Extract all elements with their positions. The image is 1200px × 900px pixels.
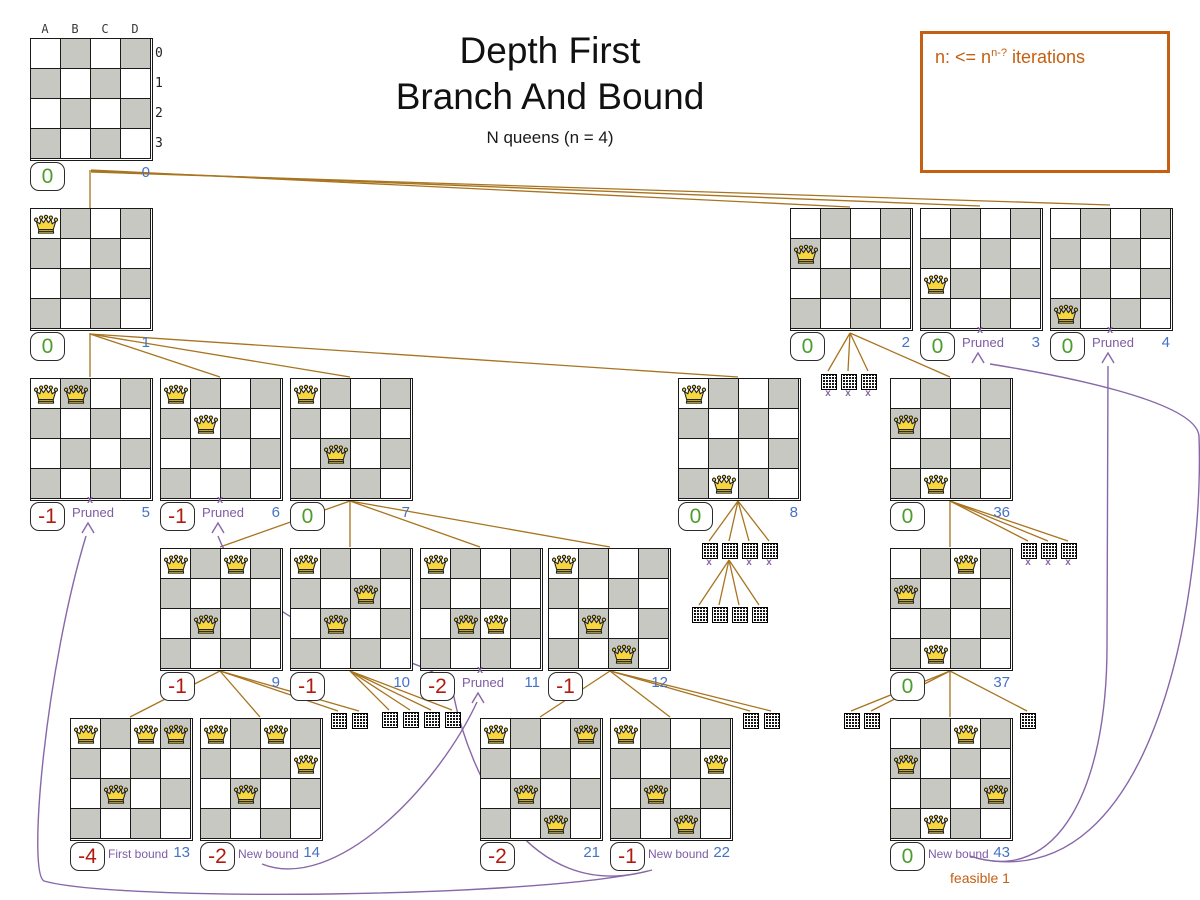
cell bbox=[891, 469, 921, 499]
cell bbox=[421, 639, 451, 669]
cell bbox=[609, 579, 639, 609]
board-10 bbox=[290, 548, 413, 671]
queen-icon bbox=[162, 720, 190, 748]
cell bbox=[161, 809, 191, 839]
cell bbox=[671, 719, 701, 749]
score-badge-8: 0 bbox=[678, 502, 713, 531]
cell bbox=[981, 639, 1011, 669]
cell bbox=[921, 579, 951, 609]
cell bbox=[921, 749, 951, 779]
cell bbox=[381, 379, 411, 409]
cell bbox=[821, 269, 851, 299]
row-label-1: 1 bbox=[155, 76, 163, 91]
cell bbox=[61, 299, 91, 329]
score-badge-9: -1 bbox=[160, 672, 195, 701]
cell bbox=[221, 579, 251, 609]
cell bbox=[981, 469, 1011, 499]
queen-icon bbox=[612, 720, 640, 748]
cell bbox=[31, 469, 61, 499]
cell bbox=[791, 209, 821, 239]
cell bbox=[921, 239, 951, 269]
cell bbox=[981, 579, 1011, 609]
cell bbox=[291, 379, 321, 409]
cell bbox=[1051, 239, 1081, 269]
cell bbox=[121, 269, 151, 299]
pruned-label-4: Pruned bbox=[1071, 335, 1155, 350]
queen-icon bbox=[192, 410, 220, 438]
tree-edge bbox=[350, 501, 480, 547]
pruned-label-3: Pruned bbox=[941, 335, 1025, 350]
cell bbox=[611, 719, 641, 749]
cell bbox=[191, 379, 221, 409]
cell bbox=[739, 409, 769, 439]
mini-board bbox=[331, 713, 347, 729]
cell bbox=[121, 69, 151, 99]
cell bbox=[981, 719, 1011, 749]
col-label-B: B bbox=[60, 22, 90, 36]
score-badge-12: -1 bbox=[548, 672, 583, 701]
cell bbox=[951, 239, 981, 269]
cell bbox=[641, 749, 671, 779]
pruned-arrow-6 bbox=[212, 523, 224, 533]
cell bbox=[981, 609, 1011, 639]
queen-icon bbox=[922, 470, 950, 498]
bound-label-13: First bound bbox=[108, 847, 168, 861]
cell bbox=[481, 579, 511, 609]
mini-board bbox=[752, 607, 768, 623]
pruned-label-6: Pruned bbox=[181, 505, 265, 520]
queen-icon bbox=[322, 610, 350, 638]
title-block: Depth First Branch And Bound N queens (n… bbox=[300, 28, 800, 148]
cell bbox=[851, 269, 881, 299]
queen-icon bbox=[892, 580, 920, 608]
node-index-7: 7 bbox=[380, 504, 410, 521]
node-index-2: 2 bbox=[880, 334, 910, 351]
node-index-10: 10 bbox=[380, 674, 410, 691]
cell bbox=[91, 69, 121, 99]
mini-board bbox=[844, 713, 860, 729]
cell bbox=[481, 549, 511, 579]
cell bbox=[201, 809, 231, 839]
cell bbox=[291, 609, 321, 639]
cell bbox=[739, 379, 769, 409]
cell bbox=[921, 299, 951, 329]
queen-icon bbox=[952, 550, 980, 578]
cell bbox=[851, 299, 881, 329]
cell bbox=[251, 549, 281, 579]
col-label-C: C bbox=[90, 22, 120, 36]
cell bbox=[291, 639, 321, 669]
queen-icon bbox=[292, 750, 320, 778]
queen-icon bbox=[672, 810, 700, 838]
cell bbox=[191, 579, 221, 609]
cell bbox=[351, 379, 381, 409]
score-badge-21: -2 bbox=[480, 842, 515, 871]
cell bbox=[891, 809, 921, 839]
cell bbox=[981, 209, 1011, 239]
cell bbox=[821, 209, 851, 239]
cell bbox=[511, 809, 541, 839]
cell bbox=[739, 439, 769, 469]
queen-icon bbox=[192, 610, 220, 638]
cell bbox=[891, 579, 921, 609]
tree-edge bbox=[610, 671, 771, 711]
tree-edge bbox=[828, 333, 850, 371]
score-badge-7: 0 bbox=[290, 502, 325, 531]
cell bbox=[221, 409, 251, 439]
cell bbox=[921, 209, 951, 239]
cell bbox=[381, 469, 411, 499]
node-index-9: 9 bbox=[250, 674, 280, 691]
cell bbox=[31, 99, 61, 129]
cell bbox=[291, 779, 321, 809]
cell bbox=[31, 39, 61, 69]
title-line2: Branch And Bound bbox=[300, 74, 800, 120]
cell bbox=[251, 609, 281, 639]
cell bbox=[91, 439, 121, 469]
score-badge-22: -1 bbox=[610, 842, 645, 871]
cell bbox=[201, 749, 231, 779]
queen-icon bbox=[982, 780, 1010, 808]
cell bbox=[191, 609, 221, 639]
cell bbox=[951, 809, 981, 839]
cell bbox=[321, 639, 351, 669]
board-12 bbox=[548, 548, 671, 671]
queen-icon bbox=[952, 720, 980, 748]
cell bbox=[609, 639, 639, 669]
col-label-A: A bbox=[30, 22, 60, 36]
cell bbox=[121, 209, 151, 239]
cell bbox=[571, 809, 601, 839]
queen-icon bbox=[922, 270, 950, 298]
cell bbox=[121, 239, 151, 269]
cell bbox=[881, 269, 911, 299]
cell bbox=[921, 549, 951, 579]
cell bbox=[851, 209, 881, 239]
cell bbox=[131, 749, 161, 779]
cell bbox=[251, 409, 281, 439]
cell bbox=[161, 549, 191, 579]
cell bbox=[131, 779, 161, 809]
cell bbox=[131, 719, 161, 749]
queen-icon bbox=[580, 610, 608, 638]
score-badge-13: -4 bbox=[70, 842, 105, 871]
iterations-note: n: <= nn-? iterations bbox=[935, 47, 1085, 67]
score-badge-2: 0 bbox=[790, 332, 825, 361]
mini-board bbox=[692, 607, 708, 623]
cell bbox=[881, 239, 911, 269]
mini-board-pruned-x: x bbox=[762, 557, 776, 568]
cell bbox=[221, 379, 251, 409]
cell bbox=[191, 639, 221, 669]
cell bbox=[951, 549, 981, 579]
cell bbox=[191, 439, 221, 469]
board-3 bbox=[920, 208, 1043, 331]
cell bbox=[791, 239, 821, 269]
cell bbox=[981, 239, 1011, 269]
cell bbox=[91, 209, 121, 239]
cell bbox=[709, 379, 739, 409]
cell bbox=[321, 609, 351, 639]
cell bbox=[541, 719, 571, 749]
mini-board bbox=[743, 713, 759, 729]
cell bbox=[1111, 269, 1141, 299]
board-43 bbox=[890, 718, 1013, 841]
queen-icon bbox=[642, 780, 670, 808]
cell bbox=[709, 409, 739, 439]
cell bbox=[161, 639, 191, 669]
cell bbox=[1011, 239, 1041, 269]
cell bbox=[679, 379, 709, 409]
cell bbox=[481, 779, 511, 809]
queen-icon bbox=[102, 780, 130, 808]
cell bbox=[951, 719, 981, 749]
cell bbox=[981, 549, 1011, 579]
cell bbox=[321, 409, 351, 439]
cell bbox=[121, 469, 151, 499]
cell bbox=[481, 749, 511, 779]
cell bbox=[891, 379, 921, 409]
cell bbox=[291, 469, 321, 499]
cell bbox=[31, 129, 61, 159]
cell bbox=[951, 749, 981, 779]
cell bbox=[921, 609, 951, 639]
cell bbox=[71, 749, 101, 779]
cell bbox=[511, 639, 541, 669]
cell bbox=[291, 749, 321, 779]
pruned-label-11: Pruned bbox=[441, 675, 525, 690]
cell bbox=[821, 299, 851, 329]
cell bbox=[1111, 209, 1141, 239]
cell bbox=[981, 779, 1011, 809]
cell bbox=[31, 379, 61, 409]
cell bbox=[891, 439, 921, 469]
cell bbox=[231, 809, 261, 839]
cell bbox=[701, 719, 731, 749]
cell bbox=[951, 409, 981, 439]
mini-board bbox=[722, 543, 738, 559]
cell bbox=[61, 269, 91, 299]
cell bbox=[251, 439, 281, 469]
cell bbox=[549, 639, 579, 669]
tree-edge bbox=[90, 334, 220, 377]
cell bbox=[251, 579, 281, 609]
cell bbox=[31, 409, 61, 439]
mini-board-pruned-x: x bbox=[742, 557, 756, 568]
queen-icon bbox=[542, 810, 570, 838]
cell bbox=[121, 409, 151, 439]
cell bbox=[981, 809, 1011, 839]
subtitle: N queens (n = 4) bbox=[300, 128, 800, 148]
cell bbox=[131, 809, 161, 839]
mini-board bbox=[732, 607, 748, 623]
iterations-note-box: n: <= nn-? iterations bbox=[920, 31, 1170, 173]
cell bbox=[1141, 209, 1171, 239]
cell bbox=[61, 439, 91, 469]
cell bbox=[951, 779, 981, 809]
board-9 bbox=[160, 548, 283, 671]
mini-board-pruned-x: x bbox=[861, 388, 875, 399]
mini-board bbox=[445, 712, 461, 728]
score-badge-14: -2 bbox=[200, 842, 235, 871]
cell bbox=[451, 579, 481, 609]
cell bbox=[1051, 299, 1081, 329]
cell bbox=[611, 779, 641, 809]
cell bbox=[61, 239, 91, 269]
cell bbox=[1081, 239, 1111, 269]
cell bbox=[31, 69, 61, 99]
mini-board bbox=[424, 712, 440, 728]
queen-icon bbox=[32, 210, 60, 238]
node-index-36: 36 bbox=[980, 504, 1010, 521]
cell bbox=[321, 439, 351, 469]
cell bbox=[1011, 299, 1041, 329]
cell bbox=[91, 379, 121, 409]
cell bbox=[541, 809, 571, 839]
cell bbox=[571, 779, 601, 809]
cell bbox=[221, 609, 251, 639]
cell bbox=[61, 39, 91, 69]
cell bbox=[91, 39, 121, 69]
board-6 bbox=[160, 378, 283, 501]
mini-board bbox=[403, 712, 419, 728]
board-22 bbox=[610, 718, 733, 841]
board-36 bbox=[890, 378, 1013, 501]
mini-board bbox=[1020, 713, 1036, 729]
cell bbox=[61, 379, 91, 409]
score-badge-37: 0 bbox=[890, 672, 925, 701]
cell bbox=[1141, 299, 1171, 329]
cell bbox=[891, 409, 921, 439]
cell bbox=[951, 379, 981, 409]
cell bbox=[709, 439, 739, 469]
cell bbox=[679, 469, 709, 499]
mini-board bbox=[764, 713, 780, 729]
queen-icon bbox=[72, 720, 100, 748]
tree-edge bbox=[850, 333, 868, 371]
mini-board bbox=[712, 607, 728, 623]
cell bbox=[201, 719, 231, 749]
cell bbox=[769, 439, 799, 469]
board-4 bbox=[1050, 208, 1173, 331]
cell bbox=[611, 809, 641, 839]
cell bbox=[31, 239, 61, 269]
queen-icon bbox=[702, 750, 730, 778]
cell bbox=[609, 609, 639, 639]
cell bbox=[71, 719, 101, 749]
cell bbox=[671, 809, 701, 839]
cell bbox=[351, 549, 381, 579]
cell bbox=[549, 609, 579, 639]
cell bbox=[161, 469, 191, 499]
cell bbox=[291, 409, 321, 439]
cell bbox=[91, 239, 121, 269]
board-0 bbox=[30, 38, 153, 161]
cell bbox=[881, 209, 911, 239]
queen-icon bbox=[482, 720, 510, 748]
queen-icon bbox=[162, 380, 190, 408]
cell bbox=[101, 779, 131, 809]
board-13 bbox=[70, 718, 193, 841]
cell bbox=[161, 379, 191, 409]
mini-board bbox=[382, 712, 398, 728]
board-5 bbox=[30, 378, 153, 501]
cell bbox=[611, 749, 641, 779]
mini-board-pruned-x: x bbox=[1041, 557, 1055, 568]
cell bbox=[511, 609, 541, 639]
cell bbox=[639, 609, 669, 639]
cell bbox=[921, 809, 951, 839]
cell bbox=[921, 779, 951, 809]
queen-icon bbox=[550, 550, 578, 578]
cell bbox=[981, 379, 1011, 409]
cell bbox=[321, 379, 351, 409]
col-label-D: D bbox=[120, 22, 150, 36]
tree-edge bbox=[848, 333, 850, 371]
cell bbox=[351, 639, 381, 669]
cell bbox=[251, 379, 281, 409]
cell bbox=[71, 779, 101, 809]
cell bbox=[1081, 269, 1111, 299]
bound-label-22: New bound bbox=[648, 847, 709, 861]
board-1 bbox=[30, 208, 153, 331]
cell bbox=[549, 549, 579, 579]
queen-icon bbox=[922, 810, 950, 838]
cell bbox=[121, 439, 151, 469]
queen-icon bbox=[32, 380, 60, 408]
cell bbox=[161, 409, 191, 439]
cell bbox=[121, 39, 151, 69]
cell bbox=[791, 299, 821, 329]
cell bbox=[791, 269, 821, 299]
cell bbox=[891, 609, 921, 639]
cell bbox=[351, 439, 381, 469]
queen-icon bbox=[162, 550, 190, 578]
queen-icon bbox=[792, 240, 820, 268]
cell bbox=[351, 609, 381, 639]
cell bbox=[121, 299, 151, 329]
cell bbox=[191, 409, 221, 439]
cell bbox=[381, 549, 411, 579]
cell bbox=[351, 409, 381, 439]
pruned-arrow-11 bbox=[472, 693, 484, 703]
queen-icon bbox=[352, 580, 380, 608]
queen-icon bbox=[232, 780, 260, 808]
cell bbox=[101, 809, 131, 839]
pruned-label-5: Pruned bbox=[51, 505, 135, 520]
cell bbox=[571, 719, 601, 749]
queen-icon bbox=[922, 640, 950, 668]
queen-icon bbox=[1052, 300, 1080, 328]
mini-board-pruned-x: x bbox=[821, 388, 835, 399]
cell bbox=[981, 269, 1011, 299]
cell bbox=[769, 409, 799, 439]
cell bbox=[261, 749, 291, 779]
pruned-arrow-3 bbox=[972, 353, 984, 363]
cell bbox=[1081, 209, 1111, 239]
cell bbox=[951, 269, 981, 299]
queen-icon bbox=[62, 380, 90, 408]
score-badge-0: 0 bbox=[30, 162, 65, 191]
queen-icon bbox=[292, 380, 320, 408]
cell bbox=[101, 749, 131, 779]
cell bbox=[951, 439, 981, 469]
cell bbox=[421, 609, 451, 639]
cell bbox=[381, 639, 411, 669]
cell bbox=[351, 469, 381, 499]
cell bbox=[201, 779, 231, 809]
cell bbox=[579, 579, 609, 609]
